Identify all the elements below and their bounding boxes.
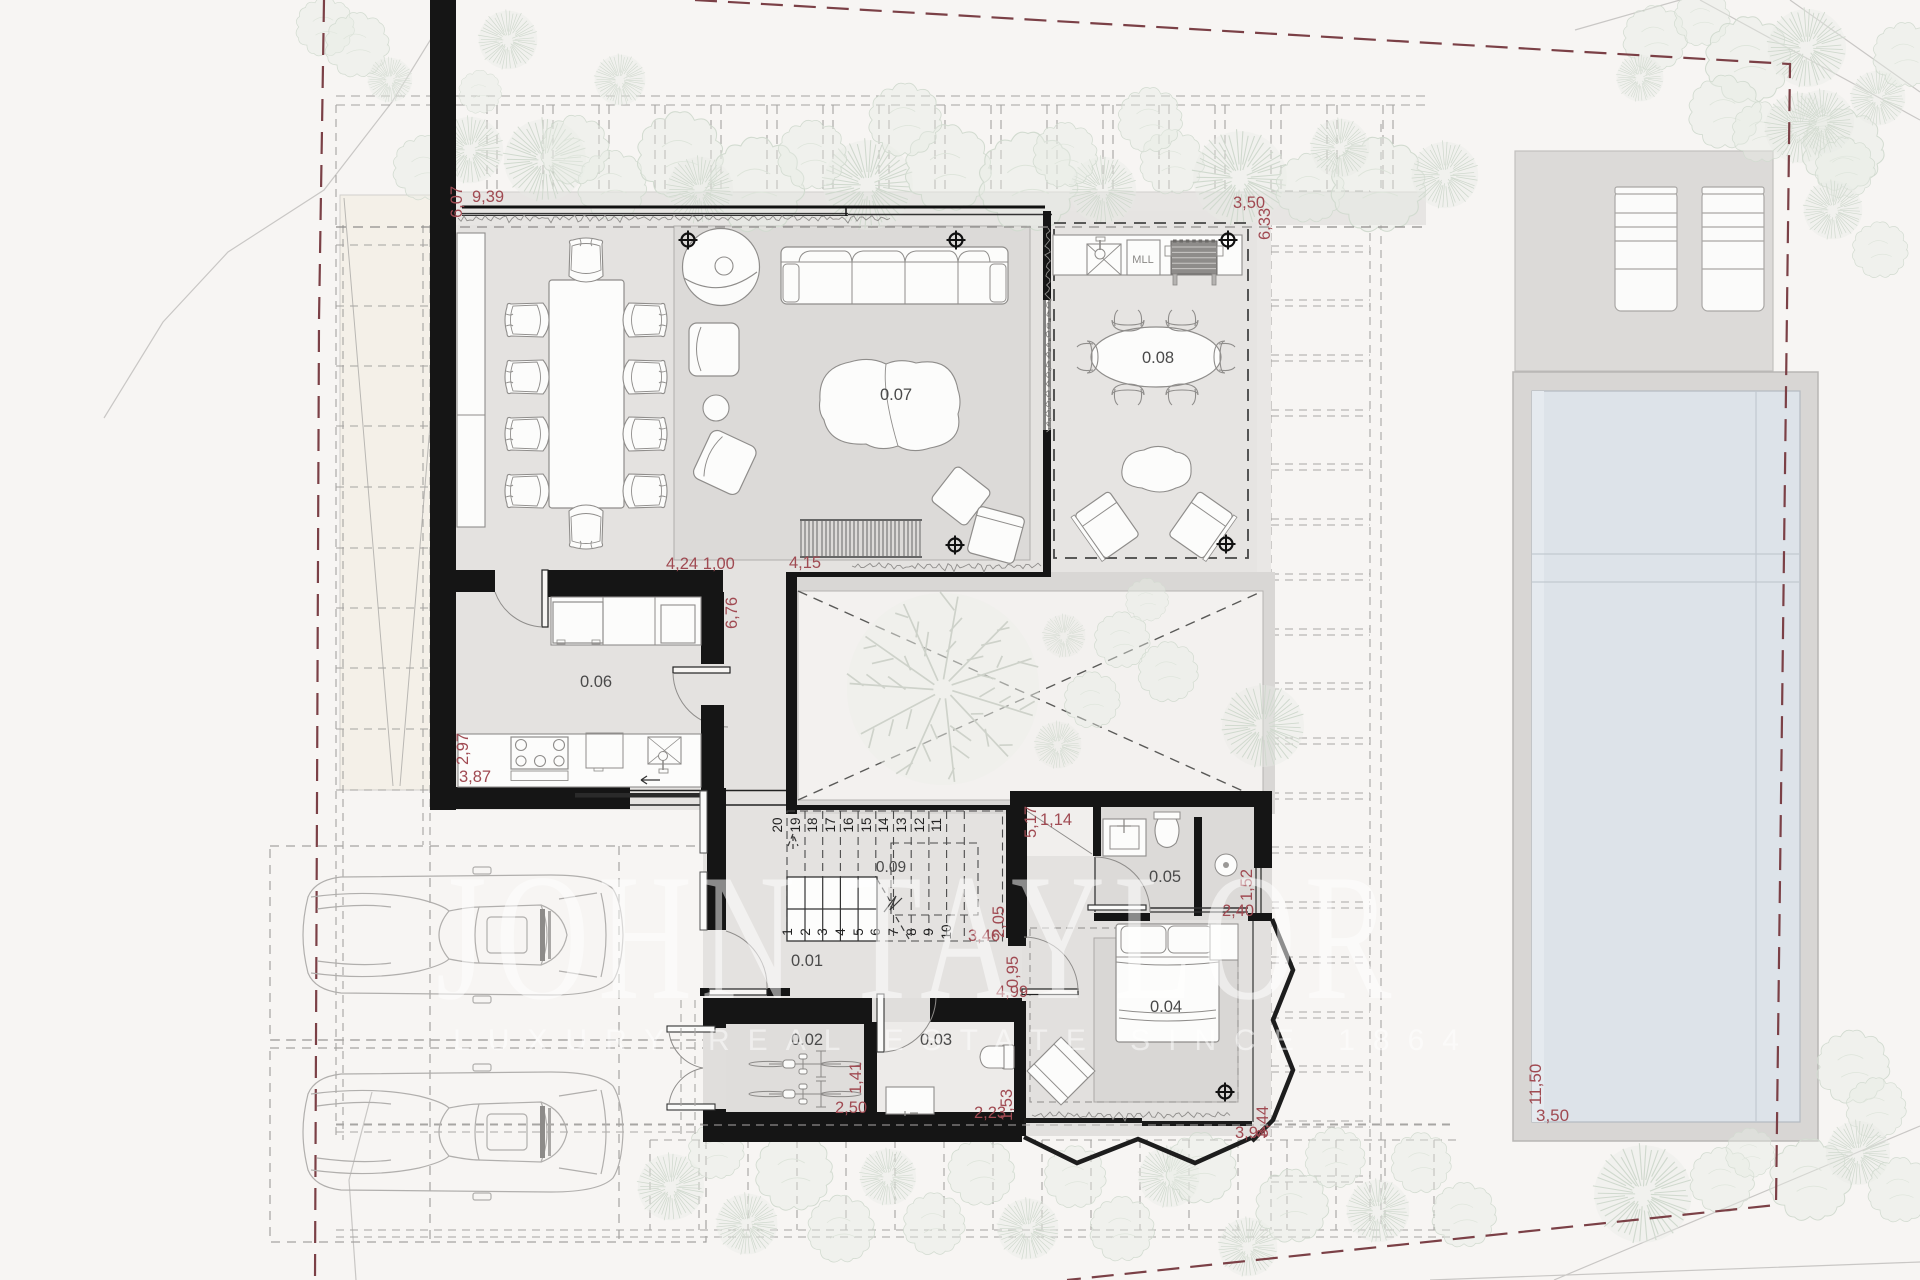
svg-text:12: 12 bbox=[912, 817, 927, 832]
svg-text:1,53: 1,53 bbox=[998, 1089, 1016, 1121]
svg-text:6,07: 6,07 bbox=[448, 186, 466, 218]
svg-text:6,33: 6,33 bbox=[1256, 208, 1274, 240]
svg-text:20: 20 bbox=[770, 817, 785, 832]
svg-text:2,50: 2,50 bbox=[835, 1099, 867, 1117]
svg-text:3,87: 3,87 bbox=[459, 768, 491, 786]
svg-text:11,50: 11,50 bbox=[1526, 1064, 1545, 1105]
svg-text:3,44: 3,44 bbox=[1254, 1106, 1272, 1138]
svg-text:9,39: 9,39 bbox=[472, 188, 504, 206]
svg-text:6,76: 6,76 bbox=[723, 597, 741, 629]
svg-text:14: 14 bbox=[876, 817, 891, 833]
svg-text:1,41: 1,41 bbox=[847, 1062, 865, 1094]
svg-text:19: 19 bbox=[788, 817, 803, 832]
svg-text:LUXURY REAL ESTATE SINCE 1864: LUXURY REAL ESTATE SINCE 1864 bbox=[453, 1024, 1477, 1057]
svg-text:13: 13 bbox=[894, 817, 909, 832]
svg-text:0.06: 0.06 bbox=[580, 673, 612, 691]
svg-text:11: 11 bbox=[929, 818, 944, 832]
svg-text:2,97: 2,97 bbox=[454, 733, 472, 765]
svg-text:JOHN TAYLOR: JOHN TAYLOR bbox=[436, 837, 1400, 1038]
svg-text:4,15: 4,15 bbox=[789, 554, 821, 572]
svg-text:3,50: 3,50 bbox=[1536, 1106, 1569, 1125]
svg-text:1,14: 1,14 bbox=[1040, 811, 1072, 829]
svg-text:16: 16 bbox=[841, 817, 856, 832]
svg-text:5,17: 5,17 bbox=[1022, 806, 1040, 838]
svg-text:0.07: 0.07 bbox=[880, 386, 912, 404]
svg-text:4,24 1,00: 4,24 1,00 bbox=[666, 555, 735, 573]
svg-text:15: 15 bbox=[859, 817, 874, 832]
svg-text:MLL: MLL bbox=[1132, 254, 1153, 266]
svg-text:18: 18 bbox=[805, 817, 820, 832]
svg-text:0.08: 0.08 bbox=[1142, 349, 1174, 367]
svg-text:17: 17 bbox=[823, 817, 838, 832]
